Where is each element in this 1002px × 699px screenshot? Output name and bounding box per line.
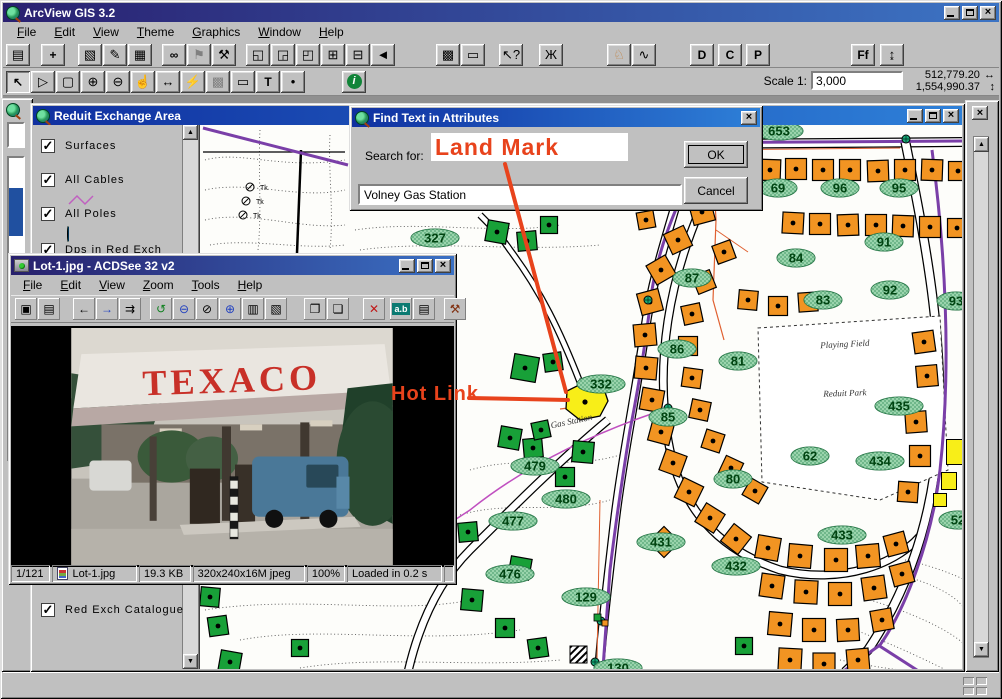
scale-group: Scale 1: xyxy=(764,71,903,90)
describe-icon[interactable]: ▤ xyxy=(413,298,435,320)
clear-selection[interactable]: ▭ xyxy=(461,44,485,66)
vertical-arrow-icon: ↕ xyxy=(983,81,995,93)
status-cell-5: Loaded in 0.2 s xyxy=(347,565,442,582)
extension-dog[interactable]: ♘ xyxy=(607,44,631,66)
acdsee-title: Lot-1.jpg - ACDSee 32 v2 xyxy=(33,259,175,273)
view-icon xyxy=(36,109,50,123)
browse-icon[interactable]: ▣ xyxy=(15,298,37,320)
acdsee-close-button[interactable]: × xyxy=(435,259,451,273)
svg-text:87: 87 xyxy=(685,271,699,286)
toc-scroll-up-icon[interactable]: ▲ xyxy=(183,125,198,140)
hotlink-tool[interactable]: ⚡ xyxy=(181,71,205,93)
svg-text:84: 84 xyxy=(789,251,804,266)
layer-label: All Cables xyxy=(65,174,125,186)
acdsee-menu-help[interactable]: Help xyxy=(230,276,271,294)
theme-properties[interactable]: ▧ xyxy=(78,44,102,66)
next-image-icon[interactable]: → xyxy=(96,298,118,320)
svg-text:Tk: Tk xyxy=(253,213,261,220)
toolbar-gap xyxy=(771,54,851,55)
acdsee-window: Lot-1.jpg - ACDSee 32 v2 × FileEditViewZ… xyxy=(8,253,457,585)
zoom-in-extent[interactable]: ⊞ xyxy=(321,44,345,66)
find[interactable]: ∞ xyxy=(162,44,186,66)
horizontal-arrow-icon: ↔ xyxy=(983,69,995,81)
toolbar-gap xyxy=(142,309,150,310)
refresh-icon[interactable]: ↺ xyxy=(150,298,172,320)
open-icon[interactable]: ▤ xyxy=(38,298,60,320)
svg-text:TEXACO: TEXACO xyxy=(142,357,322,403)
save-project[interactable]: ▤ xyxy=(6,44,30,66)
print-icon[interactable]: ▥ xyxy=(242,298,264,320)
acquire-icon[interactable]: ▧ xyxy=(265,298,287,320)
toc-item-surfaces[interactable]: ✓Surfaces xyxy=(41,139,116,153)
layer-label: Surfaces xyxy=(65,140,116,152)
toolbar-gap xyxy=(288,309,304,310)
acdsee-maximize-button[interactable] xyxy=(417,259,433,273)
toolbar-gap xyxy=(61,309,73,310)
search-for-label: Search for: xyxy=(365,149,424,163)
vertical-scrollbar[interactable]: ▲ ▼ xyxy=(973,136,989,658)
toc-scroll-down-icon[interactable]: ▼ xyxy=(183,654,198,669)
slideshow-icon[interactable]: ⇉ xyxy=(119,298,141,320)
svg-text:Reduit Park: Reduit Park xyxy=(822,387,868,399)
neighborhood-tool[interactable]: ▩ xyxy=(206,71,230,93)
pole-tool[interactable]: ↨ xyxy=(880,44,904,66)
view-minimize-button[interactable] xyxy=(907,109,923,123)
select-box-tool[interactable]: ▢ xyxy=(56,71,80,93)
project-window-icon xyxy=(6,103,20,117)
svg-text:91: 91 xyxy=(877,235,891,250)
dialog-designer-bug[interactable]: Ж xyxy=(539,44,563,66)
app-titlebar: ArcView GIS 3.2 × xyxy=(3,3,999,22)
arcview-globe-icon xyxy=(6,6,20,20)
svg-text:80: 80 xyxy=(726,472,740,487)
copy-icon[interactable]: ❐ xyxy=(304,298,326,320)
menu-help[interactable]: Help xyxy=(311,23,352,41)
layer-label: Red Exch Catalogue xyxy=(65,604,184,616)
zoom-in-tool[interactable]: ⊕ xyxy=(81,71,105,93)
minimize-button[interactable] xyxy=(944,6,960,20)
move-icon[interactable]: ❏ xyxy=(327,298,349,320)
acdsee-menu-file[interactable]: File xyxy=(15,276,50,294)
svg-text:86: 86 xyxy=(670,342,684,357)
view-title: Reduit Exchange Area xyxy=(54,109,181,123)
svg-text:327: 327 xyxy=(424,231,446,246)
callout-tool[interactable]: ▭ xyxy=(231,71,255,93)
query-builder[interactable]: ⚒ xyxy=(212,44,236,66)
ok-button[interactable]: OK xyxy=(684,141,748,168)
maximize-button[interactable] xyxy=(962,6,978,20)
main-toolbar: ▤+▧✎▦∞⚑⚒◱◲◰⊞⊟◄▩▭↖?Ж♘∿DCPFf↨ xyxy=(3,42,999,68)
svg-text:433: 433 xyxy=(831,528,853,543)
layer-checkbox[interactable]: ✓ xyxy=(41,173,55,187)
zoom-fit-icon[interactable]: ⊘ xyxy=(196,298,218,320)
add-theme[interactable]: + xyxy=(41,44,65,66)
toolbar-gap xyxy=(350,309,363,310)
svg-text:Tk: Tk xyxy=(260,185,268,192)
coord-y: 1,554,990.37 xyxy=(916,81,980,93)
svg-text:332: 332 xyxy=(590,377,612,392)
acdsee-titlebar[interactable]: Lot-1.jpg - ACDSee 32 v2 × xyxy=(11,256,454,275)
project-list-fragment xyxy=(7,122,25,148)
coord-x: 512,779.20 xyxy=(925,69,980,81)
coordinate-readout: 512,779.20 ↔ 1,554,990.37 ↕ xyxy=(916,69,995,93)
zoom-previous[interactable]: ◄ xyxy=(371,44,395,66)
acdsee-menu-edit[interactable]: Edit xyxy=(52,276,89,294)
zoom-out-tool[interactable]: ⊖ xyxy=(106,71,130,93)
status-cell-2: 19.3 KB xyxy=(139,565,191,582)
svg-text:480: 480 xyxy=(555,492,577,507)
svg-text:435: 435 xyxy=(888,399,910,414)
rename-icon[interactable]: a.b xyxy=(390,298,412,320)
zoom-out-extent[interactable]: ⊟ xyxy=(346,44,370,66)
prev-image-icon[interactable]: ← xyxy=(73,298,95,320)
status-cell-3: 320x240x16M jpeg xyxy=(193,565,305,582)
background-window-edge: × ▲ ▼ xyxy=(965,100,999,672)
edit-legend[interactable]: ✎ xyxy=(103,44,127,66)
toolbar-gap xyxy=(396,54,436,55)
svg-text:434: 434 xyxy=(869,454,891,469)
menu-view[interactable]: View xyxy=(85,23,127,41)
tools-icon[interactable]: ⚒ xyxy=(444,298,466,320)
svg-text:52: 52 xyxy=(951,513,962,528)
menu-theme[interactable]: Theme xyxy=(129,23,182,41)
toolbar-gap xyxy=(486,54,499,55)
svg-text:477: 477 xyxy=(502,514,524,529)
pointer-tool[interactable]: ↖ xyxy=(6,71,30,93)
svg-text:96: 96 xyxy=(833,181,847,196)
button-D[interactable]: D xyxy=(690,44,714,66)
acdsee-status-bar: 1/121Lot-1.jpg19.3 KB320x240x16M jpeg100… xyxy=(11,563,454,582)
menu-edit[interactable]: Edit xyxy=(46,23,83,41)
toolbar-gap xyxy=(524,54,539,55)
draw-point-tool[interactable]: • xyxy=(281,71,305,93)
app-title: ArcView GIS 3.2 xyxy=(24,6,115,20)
svg-text:653: 653 xyxy=(768,125,790,139)
photo-viewer: TEXACO xyxy=(11,326,454,567)
layer-checkbox[interactable]: ✓ xyxy=(41,207,55,221)
help[interactable]: ↖? xyxy=(499,44,523,66)
toolbar-gap xyxy=(306,81,342,82)
find-dialog-titlebar[interactable]: Find Text in Attributes × xyxy=(352,108,760,127)
acdsee-eye-icon xyxy=(14,259,29,272)
svg-text:69: 69 xyxy=(771,181,785,196)
menu-bar: FileEditViewThemeGraphicsWindowHelp xyxy=(3,22,999,42)
cancel-button[interactable]: Cancel xyxy=(684,177,748,204)
pan-tool[interactable]: ☝ xyxy=(131,71,155,93)
svg-text:83: 83 xyxy=(816,293,830,308)
zoom-in-icon[interactable]: ⊕ xyxy=(219,298,241,320)
status-cell-1: Lot-1.jpg xyxy=(52,565,137,582)
vertex-edit-tool[interactable]: ▷ xyxy=(31,71,55,93)
gas-station-photo: TEXACO xyxy=(71,328,393,565)
layer-checkbox[interactable]: ✓ xyxy=(41,603,55,617)
button-C[interactable]: C xyxy=(718,44,742,66)
zoom-active-theme[interactable]: ◲ xyxy=(271,44,295,66)
pole-legend-symbol xyxy=(67,226,69,242)
toolbar-gap xyxy=(564,54,607,55)
svg-text:Tk: Tk xyxy=(256,199,264,206)
toolbar-gap xyxy=(153,54,162,55)
svg-text:479: 479 xyxy=(524,459,546,474)
zoom-out-icon[interactable]: ⊖ xyxy=(173,298,195,320)
find-dialog-title: Find Text in Attributes xyxy=(373,111,499,125)
status-cell-4: 100% xyxy=(307,565,345,582)
status-filler xyxy=(444,565,454,582)
find-dialog-icon xyxy=(355,111,369,125)
find-dialog: Find Text in Attributes × Search for: OK… xyxy=(349,105,763,211)
select-features[interactable]: ▩ xyxy=(436,44,460,66)
tool-palette: Scale 1: 512,779.20 ↔ 1,554,990.37 ↕ ↖▷▢… xyxy=(3,68,999,96)
font-tool[interactable]: Ff xyxy=(851,44,875,66)
status-cell-0: 1/121 xyxy=(11,565,50,582)
acdsee-minimize-button[interactable] xyxy=(399,259,415,273)
svg-text:93: 93 xyxy=(949,294,962,309)
open-theme-table[interactable]: ▦ xyxy=(128,44,152,66)
zoom-selected[interactable]: ◰ xyxy=(296,44,320,66)
button-P[interactable]: P xyxy=(746,44,770,66)
toolbar-gap xyxy=(436,309,444,310)
scroll-down-icon[interactable]: ▼ xyxy=(974,642,989,657)
search-input[interactable] xyxy=(358,184,682,205)
toolbar-gap xyxy=(657,54,690,55)
view-maximize-button[interactable] xyxy=(925,109,941,123)
close-button[interactable]: × xyxy=(980,6,996,20)
acdsee-menu-bar: FileEditViewZoomToolsHelp xyxy=(11,275,454,295)
background-close-button[interactable]: × xyxy=(972,106,988,120)
svg-text:62: 62 xyxy=(803,449,817,464)
image-file-icon xyxy=(57,567,68,580)
layer-label: All Poles xyxy=(65,208,117,220)
svg-text:92: 92 xyxy=(883,283,897,298)
menu-window[interactable]: Window xyxy=(250,23,309,41)
svg-text:81: 81 xyxy=(731,354,745,369)
menu-graphics[interactable]: Graphics xyxy=(184,23,248,41)
svg-text:129: 129 xyxy=(575,590,597,605)
svg-text:85: 85 xyxy=(661,410,675,425)
scale-input[interactable] xyxy=(811,71,903,90)
acdsee-menu-zoom[interactable]: Zoom xyxy=(135,276,182,294)
layer-checkbox[interactable]: ✓ xyxy=(41,139,55,153)
acdsee-menu-tools[interactable]: Tools xyxy=(184,276,228,294)
svg-text:130: 130 xyxy=(607,661,629,670)
toc-item-all-poles[interactable]: ✓All Poles xyxy=(41,207,117,221)
zoom-full-extent[interactable]: ◱ xyxy=(246,44,270,66)
scroll-up-icon[interactable]: ▲ xyxy=(974,137,989,152)
acdsee-menu-view[interactable]: View xyxy=(91,276,133,294)
resize-grip[interactable] xyxy=(963,677,987,695)
view-close-button[interactable]: × xyxy=(943,109,959,123)
toolbar-gap xyxy=(66,54,78,55)
scale-label: Scale 1: xyxy=(764,74,807,88)
toc-item-red-exch-catalogue[interactable]: ✓Red Exch Catalogue xyxy=(41,603,184,617)
svg-text:432: 432 xyxy=(725,559,747,574)
locate-address[interactable]: ⚑ xyxy=(187,44,211,66)
menu-file[interactable]: File xyxy=(9,23,44,41)
delete-icon[interactable]: ✕ xyxy=(363,298,385,320)
text-tool[interactable]: T xyxy=(256,71,280,93)
toolbar-gap xyxy=(31,54,41,55)
find-dialog-close-button[interactable]: × xyxy=(741,111,757,125)
svg-text:95: 95 xyxy=(892,181,906,196)
info-button[interactable]: i xyxy=(342,71,366,93)
acdsee-toolbar: ▣▤←→⇉↺⊖⊘⊕▥▧❐❏✕a.b▤⚒ xyxy=(11,295,454,323)
svg-text:476: 476 xyxy=(499,567,521,582)
status-bar xyxy=(3,672,999,696)
chart-pen[interactable]: ∿ xyxy=(632,44,656,66)
toc-item-all-cables[interactable]: ✓All Cables xyxy=(41,173,125,187)
measure-tool[interactable]: ↔ xyxy=(156,71,180,93)
toolbar-gap xyxy=(237,54,246,55)
svg-text:431: 431 xyxy=(650,535,672,550)
